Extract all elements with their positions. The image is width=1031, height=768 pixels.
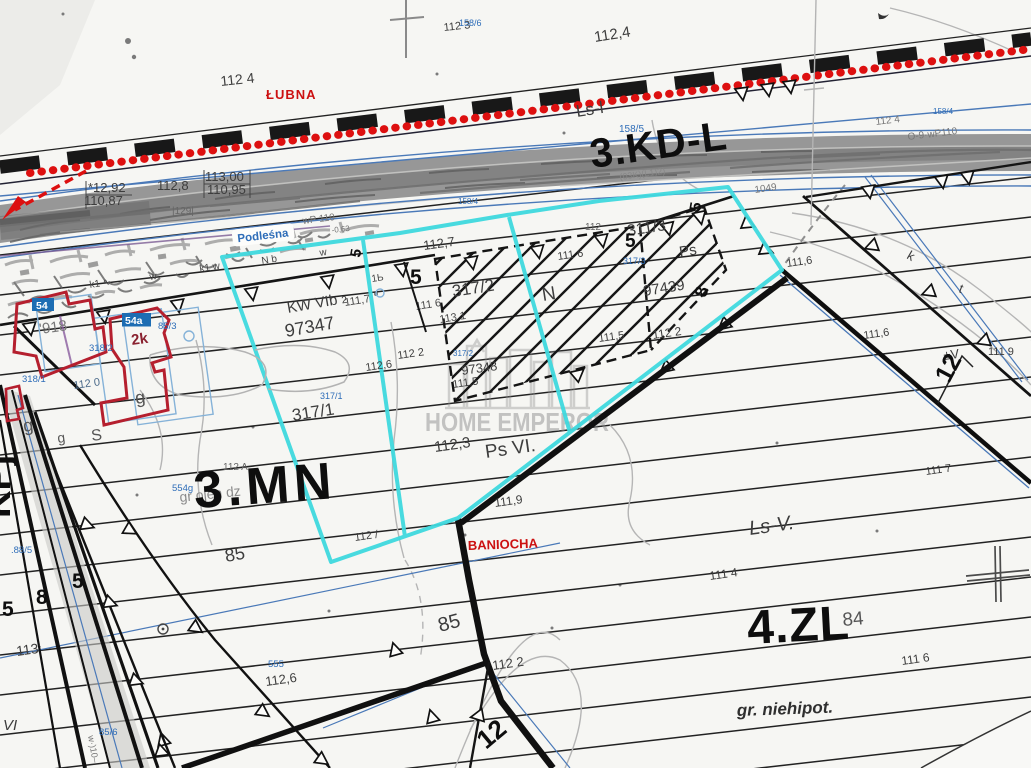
svg-text:112: 112 [585,222,601,233]
svg-text:5: 5 [2,598,14,621]
svg-text:85: 85 [223,543,246,566]
svg-text:3.MN: 3.MN [192,452,338,520]
svg-text:158/4: 158/4 [933,107,954,116]
svg-text:54a: 54a [125,315,143,327]
svg-text:158/5: 158/5 [619,124,644,135]
svg-text:5: 5 [72,570,84,593]
svg-text:317/3: 317/3 [623,256,646,266]
svg-text:317/1: 317/1 [320,391,343,401]
svg-text:5: 5 [625,231,636,252]
svg-text:317/2: 317/2 [453,349,474,358]
svg-text:554g: 554g [172,483,193,494]
svg-text:VI: VI [3,717,17,734]
svg-text:112,8: 112,8 [157,178,189,193]
svg-text:85/6: 85/6 [99,727,118,738]
svg-text:1Ь: 1Ь [371,272,385,285]
svg-text:2k: 2k [130,330,150,349]
svg-text:Ps: Ps [678,241,698,261]
svg-text:54: 54 [36,300,48,312]
svg-text:318/1: 318/1 [22,374,46,385]
svg-text:111 9: 111 9 [988,346,1014,358]
svg-text:4.ZL: 4.ZL [746,597,851,655]
svg-text:555: 555 [268,659,284,670]
svg-text:BANIOCHA: BANIOCHA [468,536,539,553]
svg-text:|129|: |129| [172,206,194,217]
svg-text:8: 8 [36,586,48,609]
svg-text:158/4: 158/4 [458,197,479,206]
svg-text:ŁUBNA: ŁUBNA [266,87,317,102]
svg-text:318/2: 318/2 [89,343,113,354]
svg-text:158/6: 158/6 [459,18,482,28]
svg-text:KPj: KPj [0,455,19,518]
svg-text:85/3: 85/3 [158,321,177,332]
svg-text:5: 5 [410,266,422,289]
svg-text:.88/5: .88/5 [11,545,32,556]
svg-text:84: 84 [842,608,865,631]
svg-text:gr. niehipot.: gr. niehipot. [735,698,833,720]
svg-text:112 A: 112 A [223,462,248,473]
